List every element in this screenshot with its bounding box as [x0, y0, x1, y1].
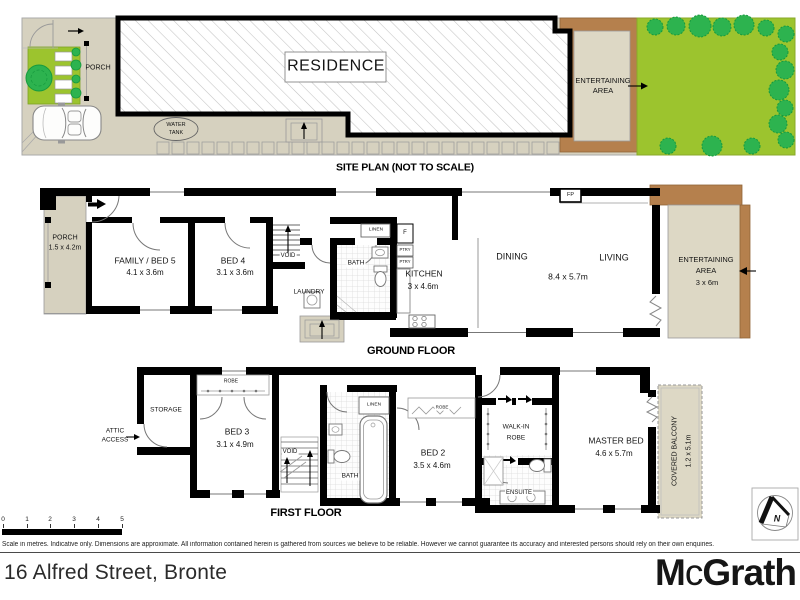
ground-stairs — [273, 225, 300, 256]
label-storage: STORAGE — [150, 408, 182, 415]
label-laundry: LAUNDRY — [294, 290, 325, 297]
label-gf-entertaining-dims: 3 x 6m — [696, 279, 719, 287]
scale-bar: 0 1 2 3 4 5 — [0, 516, 135, 538]
label-fireplace: FP — [567, 193, 574, 199]
label-gf-bath: BATH — [347, 261, 366, 268]
first-floor-caption: FIRST FLOOR — [270, 508, 341, 520]
floor-plan-page: PORCH RESIDENCE WATER TANK ENTERTAINING … — [0, 0, 800, 600]
label-ff-linen: LINEN — [366, 402, 382, 407]
label-gf-entertaining: ENTERTAINING — [678, 256, 733, 264]
label-kitchen-dims: 3 x 4.6m — [408, 283, 439, 291]
label-site-entertaining: ENTERTAINING — [575, 77, 630, 85]
label-site-porch: PORCH — [85, 64, 110, 71]
label-bed2: BED 2 — [421, 449, 446, 458]
lawn — [637, 15, 795, 156]
porch-post — [84, 96, 89, 101]
ground-floor-caption: GROUND FLOOR — [367, 346, 455, 358]
porch-post — [84, 41, 89, 46]
porch-post — [45, 217, 51, 223]
label-gf-porch: PORCH — [52, 234, 77, 241]
first-stairs — [280, 437, 318, 492]
scale-number: 3 — [72, 516, 76, 523]
label-gf-linen: LINEN — [369, 227, 383, 232]
label-master-bed-dims: 4.6 x 5.7m — [595, 450, 632, 458]
scale-bar-rule — [2, 529, 122, 535]
label-water-tank: WATER — [166, 123, 185, 129]
logo-m: M — [655, 552, 685, 593]
label-balcony-dims: 1.2 x 5.1m — [686, 435, 693, 468]
label-residence: RESIDENCE — [287, 59, 385, 76]
site-plan-drawing — [22, 15, 795, 156]
logo-c: c — [685, 552, 703, 593]
bathtub — [360, 416, 387, 503]
label-master-bed: MASTER BED — [588, 437, 643, 446]
label-attic2: ACCESS — [102, 438, 129, 445]
label-robe-bed3: ROBE — [223, 379, 239, 384]
label-pantry2: PTRY — [399, 260, 410, 264]
site-plan-caption: SITE PLAN (NOT TO SCALE) — [336, 162, 474, 173]
property-address: 16 Alfred Street, Bronte — [4, 561, 227, 585]
label-living-dining-dims: 8.4 x 5.7m — [548, 273, 588, 282]
label-bed4-dims: 3.1 x 3.6m — [216, 269, 253, 277]
label-bed3: BED 3 — [225, 428, 250, 437]
label-walk-in-robe2: ROBE — [507, 436, 525, 443]
label-attic: ATTIC — [106, 429, 124, 436]
label-walk-in-robe: WALK-IN — [503, 425, 530, 432]
disclaimer-text: Scale in metres. Indicative only. Dimens… — [2, 541, 800, 548]
paver-row — [157, 142, 559, 154]
label-covered-balcony: COVERED BALCONY — [672, 416, 679, 486]
label-ensuite: ENSUITE — [505, 490, 533, 496]
label-gf-entertaining2: AREA — [696, 267, 716, 275]
label-family-bed5: FAMILY / BED 5 — [114, 257, 175, 266]
porch-post — [45, 282, 51, 288]
label-pantry1: PTRY — [399, 248, 410, 252]
label-family-bed5-dims: 4.1 x 3.6m — [126, 269, 163, 277]
label-bed3-dims: 3.1 x 4.9m — [216, 441, 253, 449]
label-fridge: F — [403, 230, 407, 236]
scale-number: 5 — [120, 516, 124, 523]
logo-grath: Grath — [702, 552, 796, 593]
label-kitchen: KITCHEN — [405, 270, 442, 279]
label-living: LIVING — [599, 253, 629, 262]
car-icon — [33, 103, 101, 144]
tree-icon — [26, 65, 52, 91]
front-garden — [26, 47, 81, 104]
scale-number: 1 — [25, 516, 29, 523]
label-water-tank2: TANK — [169, 131, 183, 137]
label-ff-void: VOID — [282, 449, 299, 455]
label-gf-porch-dims: 1.5 x 4.2m — [49, 244, 82, 251]
label-north: N — [774, 514, 781, 523]
label-bed4: BED 4 — [221, 257, 246, 266]
site-side-entry — [286, 119, 322, 142]
label-gf-void: VOID — [280, 253, 297, 259]
balcony-floor — [658, 385, 702, 518]
plans-artwork — [0, 0, 800, 600]
scale-number: 0 — [1, 516, 5, 523]
scale-number: 4 — [96, 516, 100, 523]
scale-number: 2 — [48, 516, 52, 523]
label-dining: DINING — [496, 252, 528, 261]
label-site-entertaining2: AREA — [593, 87, 613, 95]
label-ff-bath: BATH — [341, 474, 360, 481]
label-bed2-dims: 3.5 x 4.6m — [413, 462, 450, 470]
mcgrath-logo: McGrath — [655, 552, 796, 594]
label-robe-bed2: ROBE — [435, 406, 450, 411]
